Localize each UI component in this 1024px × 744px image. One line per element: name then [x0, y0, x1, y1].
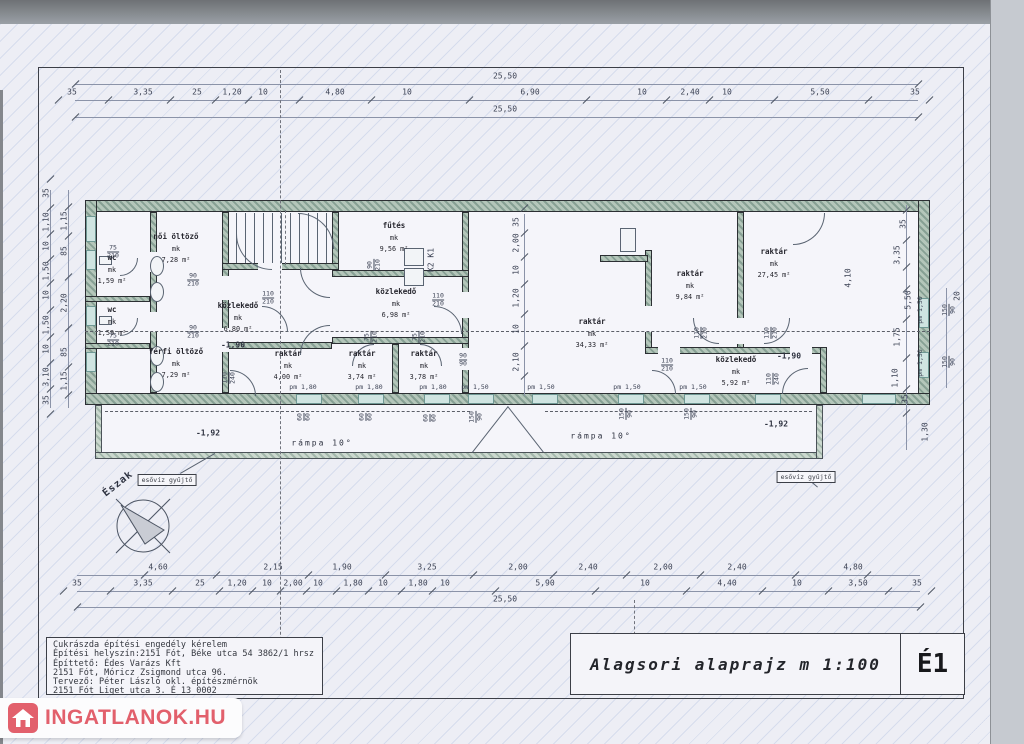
wall-segment: [85, 200, 930, 212]
room-mk: mk: [284, 361, 292, 369]
window-segment: [755, 394, 781, 404]
room-mk: mk: [108, 265, 116, 273]
opening-width: 110: [432, 292, 444, 300]
opening-size-label: 15090: [942, 304, 957, 316]
room-mk: mk: [420, 361, 428, 369]
room-area: 4,00 m²: [274, 373, 303, 381]
opening-size-label: 110210: [661, 358, 673, 373]
opening-size-label: 75210: [412, 331, 427, 343]
equipment-label: K2 K1: [427, 248, 436, 272]
opening-width: 150: [683, 408, 691, 420]
opening-width: 110: [765, 373, 773, 385]
opening-size-label: 110210: [694, 327, 709, 339]
opening-width: 60: [358, 413, 366, 421]
dim-label: 35: [67, 88, 77, 97]
dim-line: [77, 607, 920, 608]
room-name: férfi öltöző: [149, 347, 203, 356]
window-segment: [296, 394, 322, 404]
opening-height: 210: [661, 365, 673, 373]
room-mk: mk: [234, 313, 242, 321]
level-marker: -1,92: [764, 420, 788, 429]
opening-size-label: 75210: [107, 245, 119, 260]
room-area: 7,29 m²: [162, 371, 191, 379]
room-name: női öltöző: [153, 232, 198, 241]
dim-label: 10: [42, 344, 51, 354]
opening-width: 110: [661, 357, 673, 365]
equipment-fixture: [404, 268, 424, 286]
room-name: fűtés: [383, 221, 406, 230]
dim-line: [75, 117, 918, 118]
dim-label: 25: [192, 88, 202, 97]
dim-label: 3,35: [133, 88, 152, 97]
room-label: közlekedőmk6,80 m²: [218, 299, 259, 334]
parapet-height-label: pm 1,50: [916, 349, 924, 376]
opening-width: 150: [618, 408, 626, 420]
opening-width: 75: [363, 333, 371, 341]
dim-label: 10: [378, 579, 388, 588]
dim-label: 1,80: [343, 579, 362, 588]
opening-height: 60: [430, 414, 438, 422]
dim-label: 2,40: [727, 563, 746, 572]
dim-label: 1,20: [512, 288, 521, 307]
opening-width: 150: [941, 356, 949, 368]
dim-label: 2,10: [512, 352, 521, 371]
opening-size-label: 75210: [364, 331, 379, 343]
room-label: közlekedőmk6,98 m²: [376, 285, 417, 320]
opening-size-label: 110240: [766, 373, 781, 385]
opening-width: 90: [189, 324, 197, 332]
scanner-edge-right: [990, 0, 1024, 744]
window-segment: [618, 394, 644, 404]
opening-size-label: 110240: [222, 372, 237, 384]
room-mk: mk: [588, 329, 596, 337]
watermark-text: INGATLANOK.HU: [45, 706, 226, 730]
dim-label: 35: [910, 88, 920, 97]
room-mk: mk: [392, 299, 400, 307]
opening-width: 150: [941, 304, 949, 316]
wall-segment: [820, 347, 827, 393]
dim-label: 3,50: [848, 579, 867, 588]
watermark-house-icon: [8, 703, 38, 733]
dim-label: 35: [912, 579, 922, 588]
wall-segment: [332, 270, 469, 277]
room-area: 3,74 m²: [348, 373, 377, 381]
wall-segment: [645, 250, 652, 354]
room-label: fűtésmk9,56 m²: [380, 219, 409, 254]
opening-size-label: 75210: [107, 333, 119, 348]
compass-rose: [106, 486, 180, 560]
wall-segment: [600, 255, 648, 262]
dim-label: 10: [792, 579, 802, 588]
room-mk: mk: [172, 359, 180, 367]
dim-label: 4,80: [325, 88, 344, 97]
opening-height: 90: [949, 304, 957, 316]
opening-height: 60: [304, 413, 312, 421]
opening-width: 90: [366, 261, 374, 269]
opening-size-label: 110210: [262, 291, 274, 306]
room-area: 6,80 m²: [224, 325, 253, 333]
room-area: 3,78 m²: [410, 373, 439, 381]
dim-label: 3,10: [42, 367, 51, 386]
door-opening: [222, 276, 229, 300]
dim-label: 1,50: [42, 315, 51, 334]
scanner-edge-top: [0, 0, 1024, 24]
room-area: 9,56 m²: [380, 245, 409, 253]
dim-label: 10: [637, 88, 647, 97]
opening-size-label: 15090: [684, 408, 699, 420]
dim-label: 10: [440, 579, 450, 588]
dim-label: 3,25: [417, 563, 436, 572]
room-area: 6,98 m²: [382, 311, 411, 319]
washbasin-fixture: [150, 282, 164, 302]
window-segment: [86, 216, 96, 242]
opening-height: 90: [476, 411, 484, 423]
room-mk: mk: [358, 361, 366, 369]
room-label: férfi öltözőmk7,29 m²: [149, 345, 203, 380]
room-label: raktármk4,00 m²: [274, 347, 303, 382]
window-segment: [358, 394, 384, 404]
dim-label: 3,35: [893, 245, 902, 264]
room-label: raktármk34,33 m²: [576, 315, 609, 350]
dim-label: 1,10: [42, 212, 51, 231]
opening-height: 210: [371, 331, 379, 343]
door-opening: [150, 312, 157, 332]
room-label: közlekedőmk5,92 m²: [716, 353, 757, 388]
title-block-line: 2151 Fót Liget utca 3. É 13 0002: [53, 687, 316, 696]
opening-width: 75: [109, 244, 117, 252]
room-mk: mk: [390, 233, 398, 241]
window-segment: [86, 250, 96, 270]
dim-label: 10: [313, 579, 323, 588]
room-area: 34,33 m²: [576, 341, 609, 349]
dim-line: [524, 214, 525, 396]
opening-width: 60: [296, 413, 304, 421]
opening-size-label: 90210: [367, 259, 382, 271]
dim-label: 1,20: [222, 88, 241, 97]
opening-height: 210: [107, 340, 119, 348]
opening-width: 75: [109, 332, 117, 340]
room-name: raktár: [274, 349, 301, 358]
room-mk: mk: [686, 281, 694, 289]
room-label: raktármk27,45 m²: [758, 245, 791, 280]
dim-label: 1,30: [921, 422, 930, 441]
opening-width: 110: [262, 290, 274, 298]
dim-label: 35: [901, 394, 910, 404]
window-segment: [532, 394, 558, 404]
room-name: wc: [107, 305, 116, 314]
sheet-title: Alagsori alaprajz m 1:100: [570, 633, 901, 695]
dim-label: 4,40: [717, 579, 736, 588]
dim-label: 10: [512, 324, 521, 334]
level-marker: -1,90: [777, 352, 801, 361]
centerline: [105, 411, 470, 412]
dim-label: 2,00: [508, 563, 527, 572]
room-mk: mk: [172, 244, 180, 252]
dim-label: 10: [258, 88, 268, 97]
dim-overall-top: 25,50: [493, 72, 517, 81]
dim-label: 85: [60, 347, 69, 357]
dim-label: 10: [640, 579, 650, 588]
dim-label: 5,50: [904, 290, 913, 309]
parapet-height-label: pm 1,50: [461, 383, 488, 391]
rainwater-collector-note: esővíz gyűjtő: [138, 474, 197, 486]
dim-label: 5,90: [535, 579, 554, 588]
opening-width: 110: [763, 327, 771, 339]
centerline: [545, 411, 812, 412]
room-label: raktármk3,78 m²: [410, 347, 439, 382]
wall-segment: [332, 337, 469, 344]
opening-size-label: 6060: [359, 413, 374, 421]
dim-label: 2,00: [512, 233, 521, 252]
opening-height: 210: [187, 332, 199, 340]
dashed-reference-line: [285, 210, 286, 265]
room-area: 7,28 m²: [162, 256, 191, 264]
dim-label: 10: [262, 579, 272, 588]
dim-label: 5,50: [810, 88, 829, 97]
dim-label: 85: [60, 246, 69, 256]
opening-height: 90: [626, 408, 634, 420]
parapet-height-label: pm 1,80: [419, 383, 446, 391]
level-marker: -1,92: [196, 429, 220, 438]
dim-label: 10: [402, 88, 412, 97]
room-area: 9,84 m²: [676, 293, 705, 301]
opening-size-label: 90210: [187, 325, 199, 340]
room-mk: mk: [732, 367, 740, 375]
opening-height: 210: [432, 300, 444, 308]
opening-size-label: 15090: [469, 411, 484, 423]
dim-label: 35: [42, 188, 51, 198]
dim-label: 20: [953, 291, 962, 301]
dim-label: 1,15: [60, 211, 69, 230]
opening-width: 150: [468, 411, 476, 423]
room-mk: mk: [108, 317, 116, 325]
door-opening: [645, 306, 652, 332]
dim-label: 4,10: [844, 268, 853, 287]
dim-label: 1,20: [227, 579, 246, 588]
room-name: közlekedő: [218, 301, 259, 310]
dim-label: 10: [722, 88, 732, 97]
equipment-fixture: [620, 228, 636, 252]
dim-label: 1,50: [42, 261, 51, 280]
parapet-height-label: pm 1,50: [613, 383, 640, 391]
parapet-height-label: pm 1,50: [916, 296, 924, 323]
dim-label: 10: [512, 265, 521, 275]
opening-width: 90: [189, 272, 197, 280]
wall-segment: [85, 296, 150, 302]
opening-height: 90: [691, 408, 699, 420]
opening-height: 210: [374, 259, 382, 271]
dim-label: 4,60: [148, 563, 167, 572]
dim-label: 35: [42, 395, 51, 405]
room-name: közlekedő: [716, 355, 757, 364]
opening-height: 210: [771, 327, 779, 339]
opening-size-label: 6060: [297, 413, 312, 421]
opening-height: 90: [459, 360, 467, 368]
opening-height: 240: [773, 373, 781, 385]
opening-width: 110: [693, 327, 701, 339]
opening-height: 60: [366, 413, 374, 421]
dim-line: [75, 100, 918, 101]
dim-overall-bottom: 25,50: [493, 595, 517, 604]
room-area: 1,59 m²: [98, 277, 127, 285]
room-label: raktármk9,84 m²: [676, 267, 705, 302]
dim-label: 4,80: [843, 563, 862, 572]
window-segment: [424, 394, 450, 404]
window-segment: [684, 394, 710, 404]
dim-label: 2,40: [578, 563, 597, 572]
dim-label: 2,20: [60, 293, 69, 312]
dim-label: 10: [42, 241, 51, 251]
level-marker: -1,90: [221, 341, 245, 350]
opening-width: 75: [411, 333, 419, 341]
opening-height: 210: [187, 280, 199, 288]
dim-label: 2,00: [653, 563, 672, 572]
sheet-number: É1: [900, 633, 965, 695]
opening-size-label: 9090: [459, 353, 467, 368]
room-name: közlekedő: [376, 287, 417, 296]
dim-line: [75, 84, 918, 85]
door-opening: [462, 292, 469, 318]
dim-label: 1,80: [408, 579, 427, 588]
dim-label: 25: [195, 579, 205, 588]
scanned-floorplan-sheet: 25,5025,50353,35251,20104,80106,90102,40…: [0, 0, 1024, 744]
dim-label: 35: [72, 579, 82, 588]
watermark-bar: INGATLANOK.HU: [0, 698, 242, 738]
door-opening: [658, 347, 680, 354]
dim-label: 1,15: [60, 371, 69, 390]
parapet-height-label: pm 1,80: [289, 383, 316, 391]
room-name: raktár: [676, 269, 703, 278]
rainwater-collector-note: esővíz gyűjtő: [777, 471, 836, 483]
wall-segment: [392, 344, 399, 393]
opening-size-label: 90210: [187, 273, 199, 288]
dashed-reference-line: [280, 70, 281, 695]
room-name: raktár: [578, 317, 605, 326]
room-name: raktár: [410, 349, 437, 358]
opening-size-label: 110210: [432, 293, 444, 308]
dim-label: 10: [42, 290, 51, 300]
title-block-info: Cukrászda építési engedély kérelem Építé…: [46, 637, 323, 695]
dim-label: 2,40: [680, 88, 699, 97]
room-mk: mk: [770, 259, 778, 267]
dim-label: 35: [899, 219, 908, 229]
ramp-label: rámpa 10°: [291, 439, 352, 448]
dim-label: 6,90: [520, 88, 539, 97]
dim-label: 2,15: [263, 563, 282, 572]
window-segment: [86, 306, 96, 326]
centerline: [85, 331, 930, 332]
opening-size-label: 15090: [942, 356, 957, 368]
opening-height: 210: [419, 331, 427, 343]
ramp-label: rámpa 10°: [570, 432, 631, 441]
opening-width: 60: [422, 414, 430, 422]
dim-line: [77, 591, 920, 592]
room-label: női öltözőmk7,28 m²: [153, 230, 198, 265]
parapet-height-label: pm 1,50: [527, 383, 554, 391]
opening-height: 210: [262, 298, 274, 306]
opening-size-label: 15090: [619, 408, 634, 420]
opening-width: 90: [459, 352, 467, 360]
dim-label: 1,90: [332, 563, 351, 572]
paper-edge-shadow: [0, 90, 3, 744]
opening-width: 110: [221, 372, 229, 384]
dim-label: 1,75: [893, 327, 902, 346]
dim-label: 1,10: [891, 368, 900, 387]
dim-label: 35: [512, 217, 521, 227]
dim-label: 3,35: [133, 579, 152, 588]
opening-height: 240: [229, 372, 237, 384]
room-label: raktármk3,74 m²: [348, 347, 377, 382]
dim-overall-top2: 25,50: [493, 105, 517, 114]
opening-height: 210: [701, 327, 709, 339]
room-name: raktár: [760, 247, 787, 256]
dim-label: 2,00: [283, 579, 302, 588]
window-segment: [468, 394, 494, 404]
opening-size-label: 6060: [423, 414, 438, 422]
room-name: raktár: [348, 349, 375, 358]
parapet-height-label: pm 1,80: [355, 383, 382, 391]
window-segment: [86, 352, 96, 372]
opening-height: 210: [107, 252, 119, 260]
room-area: 5,92 m²: [722, 379, 751, 387]
opening-height: 90: [949, 356, 957, 368]
parapet-height-label: pm 1,50: [679, 383, 706, 391]
wall-segment: [85, 393, 930, 405]
ramp-retaining-wall: [816, 405, 823, 459]
window-segment: [862, 394, 896, 404]
opening-size-label: 110210: [764, 327, 779, 339]
room-area: 27,45 m²: [758, 271, 791, 279]
ramp-retaining-wall: [95, 405, 102, 459]
